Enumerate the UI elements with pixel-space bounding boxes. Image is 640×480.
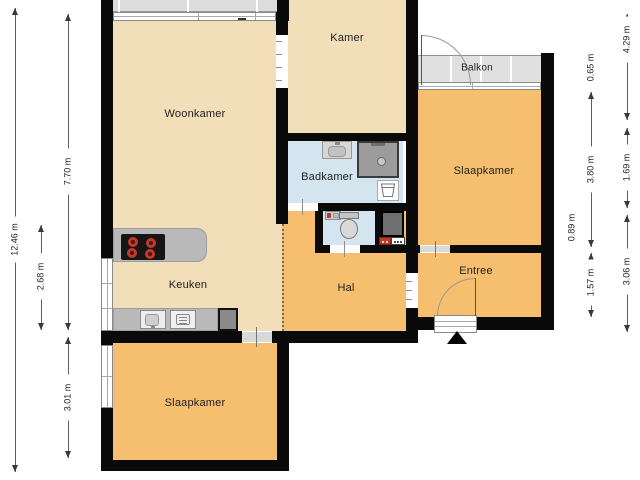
oven — [170, 310, 196, 329]
room-label-keuken: Keuken — [169, 279, 208, 291]
upper-balcony-post — [187, 0, 189, 12]
laundry-sink-icon — [378, 181, 398, 200]
room-label-badkamer: Badkamer — [301, 171, 353, 183]
oven-icon — [176, 314, 190, 325]
dimension-label: 7.70 m — [62, 149, 75, 195]
dimension-label: 3.06 m — [621, 249, 634, 295]
dimension-arrow — [624, 215, 630, 222]
dimension-arrow — [588, 240, 594, 247]
meter-strip — [391, 237, 405, 245]
window-mullion — [419, 86, 540, 87]
window-mullion — [472, 83, 473, 89]
room-floor-kamer — [288, 0, 406, 133]
washbasin-tap — [335, 142, 340, 145]
dimension-arrow — [624, 128, 630, 135]
meter-dot — [394, 241, 396, 243]
door-wc — [330, 245, 360, 253]
window-woonkamer-top — [113, 12, 276, 21]
wall — [406, 317, 554, 330]
wall — [101, 460, 289, 471]
dimension-label: 3.80 m — [585, 147, 598, 193]
window-mullion — [102, 283, 112, 284]
window-vent — [238, 18, 246, 20]
door-tick — [344, 241, 345, 257]
oven-line — [179, 323, 187, 324]
balkon-door-arc — [421, 35, 471, 85]
sill-line — [435, 326, 476, 327]
shower-faucet — [371, 143, 385, 146]
laundry-sink — [377, 180, 399, 201]
wall — [277, 343, 289, 471]
window-mullion — [107, 259, 108, 330]
meter-unit — [379, 237, 391, 245]
dimension-arrow — [588, 92, 594, 99]
dimension-label: 2.68 m — [35, 254, 48, 300]
opening-tick — [276, 41, 282, 42]
room-label-woonkamer: Woonkamer — [165, 108, 226, 120]
washbasin — [322, 141, 352, 159]
burner — [146, 238, 156, 248]
dimension-label: 3.01 m — [62, 375, 75, 421]
oven-line — [179, 317, 187, 318]
burner — [127, 248, 137, 258]
dimension-label: 0.65 m — [585, 45, 598, 91]
dimension-arrow — [65, 451, 71, 458]
room-label-hal: Hal — [337, 282, 354, 294]
dimension-arrow — [38, 225, 44, 232]
upper-balcony-strip — [101, 0, 289, 12]
room-label-balkon: Balkon — [461, 63, 493, 74]
meter-dot — [386, 241, 388, 243]
balkon-door-leaf — [421, 35, 422, 85]
dimension-arrow — [12, 8, 18, 15]
wall — [101, 12, 113, 258]
dimension-arrow — [38, 323, 44, 330]
toilet-bowl — [340, 219, 358, 239]
meter-dot — [400, 241, 402, 243]
dimension-arrow — [588, 310, 594, 317]
floor-plan: Woonkamer Kamer Badkamer Balkon Slaapkam… — [0, 0, 640, 480]
dimension-label: 4.29 m — [621, 17, 634, 63]
opening-tick — [406, 281, 412, 282]
room-label-kamer: Kamer — [330, 32, 363, 44]
opening-tick — [406, 290, 412, 291]
kitchen-tall-unit — [218, 308, 238, 331]
upper-balcony-post — [118, 0, 120, 12]
opening-tick — [276, 67, 282, 68]
dimension-label: 12.46 m — [9, 217, 22, 263]
front-door-leaf — [475, 278, 476, 316]
entrance-arrow-icon — [447, 331, 467, 344]
upper-balcony-post — [256, 0, 258, 12]
dimension-arrow — [65, 323, 71, 330]
window-mullion — [255, 13, 256, 20]
dimension-label: 1.57 m — [585, 260, 598, 306]
opening-tick — [406, 299, 412, 300]
dimension-arrow — [65, 14, 71, 21]
open-boundary-dotted — [282, 224, 284, 331]
balkon-railing-post — [510, 56, 512, 82]
window-mullion — [102, 376, 112, 377]
burner — [145, 249, 155, 259]
dimension-arrow — [624, 325, 630, 332]
kitchen-sink — [140, 310, 166, 329]
opening-tick — [276, 80, 282, 81]
opening-tick — [276, 54, 282, 55]
wc-basin-accent — [327, 213, 331, 218]
door-badkamer — [288, 203, 318, 211]
opening-hal-entree — [406, 273, 418, 308]
dimension-arrow — [624, 113, 630, 120]
sink-tap — [151, 326, 155, 328]
toilet-tank — [339, 212, 359, 219]
door-tick — [302, 199, 303, 215]
door-tick — [435, 241, 436, 257]
meter-dot — [397, 241, 399, 243]
dimension-label: 1.69 m — [621, 145, 634, 191]
burner — [128, 237, 138, 247]
dimension-arrow — [12, 465, 18, 472]
washbasin-bowl — [328, 146, 346, 157]
door-slaapkamer-bottom — [242, 331, 272, 343]
door-tick — [256, 327, 257, 347]
window-mullion — [198, 13, 199, 20]
room-label-slaapkamer-right: Slaapkamer — [454, 165, 515, 177]
wall — [318, 203, 406, 211]
meter-dot — [382, 241, 384, 243]
sill-line — [435, 321, 476, 322]
room-label-entree: Entree — [459, 265, 493, 277]
dimension-arrow — [624, 201, 630, 208]
opening-woonkamer-kamer — [276, 35, 288, 88]
shower-drain — [377, 157, 386, 166]
window-keuken-left — [101, 258, 113, 331]
dimension-label: 0.89 m — [566, 205, 579, 251]
oven-line — [179, 320, 187, 321]
dimension-arrow — [65, 337, 71, 344]
room-label-slaapkamer-bottom: Slaapkamer — [165, 397, 226, 409]
room-floor-entree — [418, 253, 541, 317]
cooktop — [121, 234, 165, 260]
sink-basin — [145, 314, 159, 326]
window-slaapkamer-left — [101, 345, 113, 408]
shaft — [381, 211, 404, 237]
window-mullion — [114, 16, 275, 17]
wall — [541, 53, 554, 330]
wall — [276, 133, 418, 141]
window-mullion — [102, 308, 112, 309]
shower — [357, 141, 399, 178]
